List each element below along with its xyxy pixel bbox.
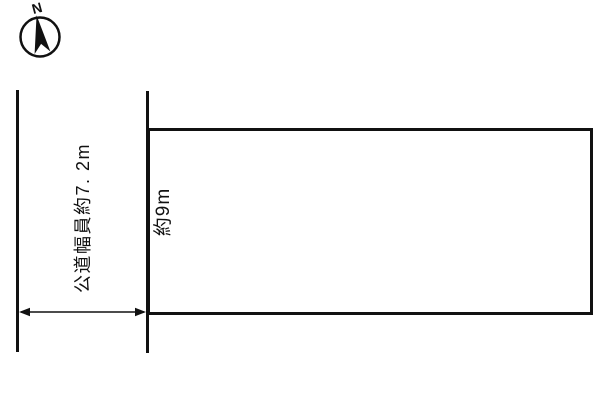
arrowhead-left-icon (19, 308, 30, 316)
frontage-label: 約9m (152, 172, 176, 252)
compass-north-indicator: N (10, 0, 80, 75)
site-plan-diagram: N 公道幅員約7. 2m 約9m (0, 0, 600, 409)
arrowhead-right-icon (135, 308, 146, 316)
road-width-arrow (18, 305, 147, 319)
compass-n-label: N (30, 0, 44, 17)
road-width-label: 公道幅員約7. 2m (71, 128, 95, 308)
land-plot-rectangle (147, 128, 593, 315)
